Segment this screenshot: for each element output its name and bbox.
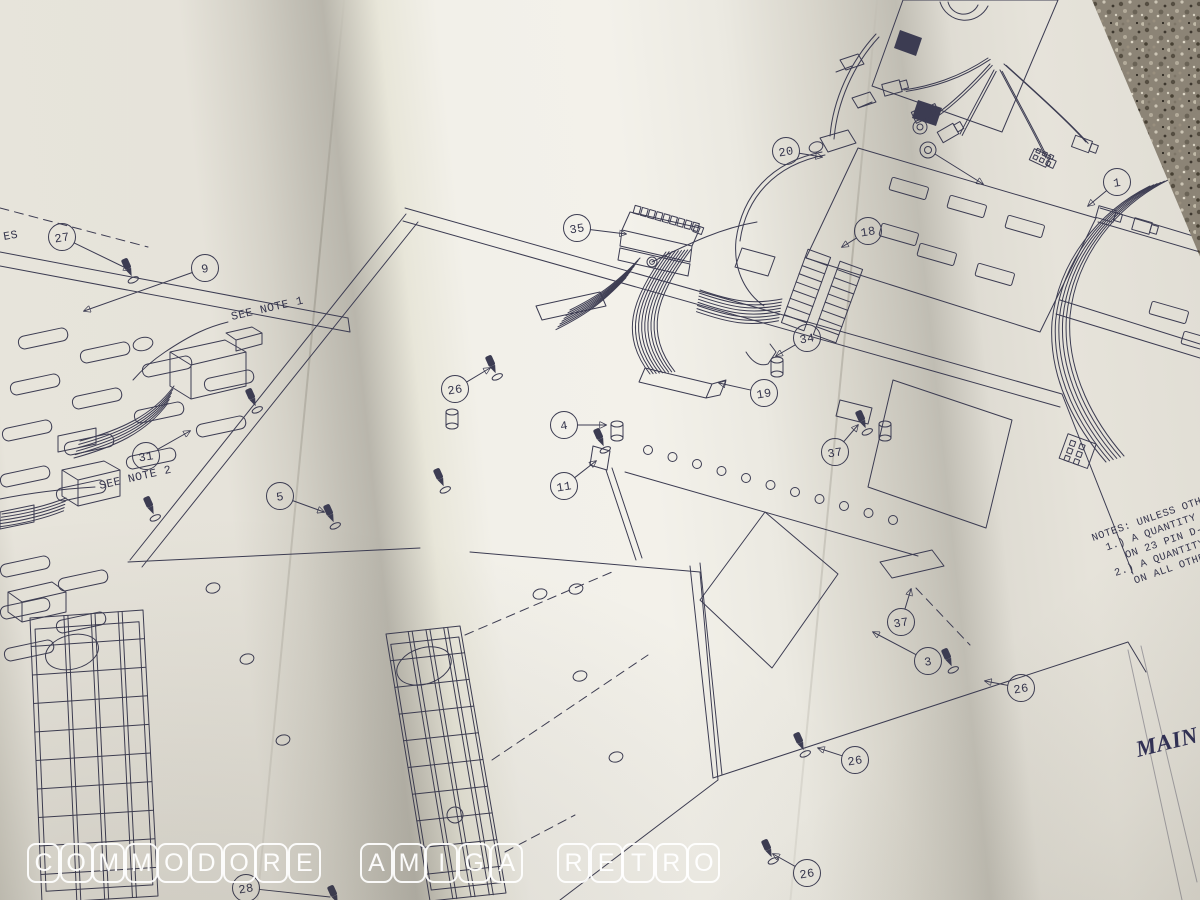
connector-pin bbox=[670, 216, 678, 225]
chassis-cutout bbox=[947, 195, 987, 218]
vent-holes-front bbox=[700, 512, 838, 668]
callout-3: 3 bbox=[873, 632, 942, 675]
callout-number: 9 bbox=[200, 262, 210, 277]
chassis-cutout bbox=[1149, 301, 1189, 324]
psu-wire bbox=[1004, 64, 1086, 142]
callout-1: 1 bbox=[1088, 169, 1131, 207]
connector-cutout bbox=[203, 369, 255, 392]
screw-drawing bbox=[431, 467, 451, 495]
callout-number: 28 bbox=[238, 881, 255, 897]
callout-31: 31 bbox=[133, 431, 191, 470]
callout-number: 31 bbox=[138, 449, 155, 465]
shield-and-ribbons-drawing bbox=[536, 212, 776, 560]
screw-hole bbox=[572, 669, 588, 682]
photo-scene: SEE NOTE 1 SEE NOTE 2 ES MAIN NOTES: UNL… bbox=[0, 0, 1200, 900]
psu-wire bbox=[960, 70, 994, 134]
callout-leader bbox=[575, 461, 596, 478]
callout-leader bbox=[799, 153, 822, 157]
ribbon-cable-line bbox=[570, 258, 640, 310]
connector-cutout bbox=[0, 465, 51, 488]
callout-number: 26 bbox=[847, 753, 864, 769]
screw-drawing bbox=[759, 838, 779, 866]
screw-drawing bbox=[483, 354, 503, 382]
label-leaders bbox=[0, 322, 228, 499]
psu-wire bbox=[934, 64, 990, 116]
callout-11: 11 bbox=[551, 461, 597, 500]
callout-leader bbox=[158, 431, 190, 449]
chassis-hole bbox=[766, 481, 775, 490]
callout-number: 34 bbox=[799, 331, 816, 347]
chassis-hole bbox=[864, 509, 873, 518]
connector-cutout bbox=[9, 373, 61, 396]
standoff-spacer bbox=[446, 409, 458, 429]
callout-number: 11 bbox=[556, 479, 573, 495]
right-panel-drawing bbox=[1056, 208, 1200, 468]
callout-balloons: 27931526411351834192013737326262628 bbox=[49, 138, 1131, 900]
vent-holes-right bbox=[868, 380, 1012, 528]
psu-wire bbox=[962, 71, 996, 135]
chassis-cutout bbox=[889, 177, 929, 200]
wire-connector bbox=[937, 120, 965, 143]
wire-connector bbox=[882, 78, 909, 96]
screw-hole bbox=[205, 581, 221, 594]
chassis-cutout bbox=[975, 263, 1015, 286]
callout-number: 26 bbox=[799, 866, 816, 882]
main-assembly-title: MAIN bbox=[1132, 722, 1200, 762]
screw-drawing bbox=[119, 257, 139, 285]
chassis-hole bbox=[742, 474, 751, 483]
screw-hole bbox=[568, 582, 584, 595]
callout-26: 26 bbox=[442, 368, 491, 403]
callout-number: 18 bbox=[860, 224, 877, 240]
connector-pin bbox=[677, 218, 685, 227]
callout-number: 19 bbox=[756, 386, 773, 402]
callout-number: 37 bbox=[893, 615, 910, 631]
callout-26: 26 bbox=[773, 854, 821, 887]
callout-leader bbox=[773, 854, 795, 866]
chassis-hole bbox=[889, 516, 898, 525]
standoff-spacer bbox=[771, 357, 783, 377]
chassis-hole bbox=[815, 495, 824, 504]
connector-pin bbox=[662, 214, 670, 223]
connector-cutout bbox=[0, 555, 51, 578]
cable-connector-drawing bbox=[736, 34, 879, 306]
panel-cutouts bbox=[0, 177, 1200, 662]
foldout-sheet: SEE NOTE 1 SEE NOTE 2 ES MAIN NOTES: UNL… bbox=[0, 0, 1200, 900]
callout-35: 35 bbox=[564, 215, 627, 242]
connector-pin bbox=[684, 220, 692, 229]
screw-drawing bbox=[141, 495, 161, 523]
callout-5: 5 bbox=[267, 483, 325, 513]
notes-block: NOTES: UNLESS OTHERW 1.) A QUANTITY OF 2… bbox=[1090, 488, 1200, 596]
psu-wire bbox=[904, 58, 988, 90]
chassis-hole bbox=[644, 446, 653, 455]
chassis-hole bbox=[791, 488, 800, 497]
callout-leader bbox=[818, 748, 842, 756]
ribbon-cable-line bbox=[657, 250, 691, 372]
callout-37: 37 bbox=[888, 589, 915, 636]
callout-number: 4 bbox=[559, 419, 569, 434]
callout-number: 3 bbox=[923, 655, 933, 670]
paper-edge-lines bbox=[1128, 646, 1197, 900]
callout-number: 5 bbox=[275, 490, 285, 505]
exploded-assembly-diagram: SEE NOTE 1 SEE NOTE 2 ES MAIN NOTES: UNL… bbox=[0, 0, 1200, 900]
callout-leader bbox=[844, 425, 858, 442]
callout-leader bbox=[776, 345, 795, 356]
callout-19: 19 bbox=[719, 380, 778, 407]
front-bezel-grilles bbox=[30, 610, 506, 900]
screw-hole bbox=[532, 587, 548, 600]
bracket-drawing bbox=[836, 400, 872, 424]
callout-number: 35 bbox=[569, 221, 586, 237]
callout-leader bbox=[590, 230, 626, 234]
wire-connector bbox=[1071, 135, 1099, 155]
callout-26: 26 bbox=[818, 747, 869, 774]
callout-number: 20 bbox=[778, 144, 795, 160]
callout-20: 20 bbox=[773, 138, 823, 165]
callout-number: 26 bbox=[1013, 681, 1030, 697]
callout-leader bbox=[74, 243, 130, 270]
pin-connector bbox=[781, 249, 830, 331]
connector-cutout bbox=[79, 341, 131, 364]
callout-leader bbox=[467, 368, 490, 382]
connector-cutout bbox=[17, 327, 69, 350]
chassis-cutout bbox=[879, 223, 919, 246]
screw-drawing bbox=[243, 387, 263, 415]
callout-34: 34 bbox=[776, 325, 821, 357]
callout-number: 37 bbox=[827, 445, 844, 461]
connector-cutout bbox=[1, 419, 53, 442]
connector-cutout bbox=[57, 569, 109, 592]
callout-leader bbox=[293, 501, 324, 512]
callout-leader bbox=[259, 889, 330, 897]
bracket-drawing bbox=[880, 550, 944, 578]
callout-26: 26 bbox=[985, 675, 1035, 702]
chassis-cutout bbox=[1181, 331, 1200, 354]
chassis-cutout bbox=[1005, 215, 1045, 238]
chassis-hole bbox=[840, 502, 849, 511]
callout-number: 26 bbox=[447, 382, 464, 398]
callout-number: 1 bbox=[1112, 176, 1122, 191]
connector-cutout bbox=[71, 387, 123, 410]
chassis-hole bbox=[668, 453, 677, 462]
chassis-cutout bbox=[917, 243, 957, 266]
power-supply-drawing bbox=[806, 0, 1096, 332]
screw-hole bbox=[239, 652, 255, 665]
callout-37: 37 bbox=[822, 425, 859, 466]
callout-leader bbox=[905, 589, 911, 609]
callout-18: 18 bbox=[842, 218, 882, 248]
screw-drawing bbox=[321, 503, 341, 531]
chassis-hole bbox=[693, 460, 702, 469]
screw-drawing bbox=[791, 731, 811, 759]
connector-cutout bbox=[141, 355, 193, 378]
bezel-grille bbox=[386, 626, 506, 900]
standoff-spacer bbox=[611, 421, 623, 441]
callout-leader bbox=[1088, 191, 1107, 206]
screw-drawing bbox=[325, 884, 345, 900]
callout-number: 27 bbox=[54, 230, 71, 246]
ribbon-cable-line bbox=[566, 264, 636, 316]
chassis-hole bbox=[717, 467, 726, 476]
connector-cutout bbox=[195, 415, 247, 438]
callout-28: 28 bbox=[233, 875, 331, 900]
cutoff-text-fragment: ES bbox=[2, 229, 19, 244]
bezel-grille bbox=[30, 610, 158, 900]
callout-leader bbox=[842, 238, 857, 247]
ribbon-cable-line bbox=[568, 261, 638, 313]
screw-hole bbox=[275, 733, 291, 746]
callout-leader bbox=[873, 632, 916, 655]
screw-hole bbox=[608, 750, 624, 763]
see-note-1-label: SEE NOTE 1 bbox=[230, 295, 305, 324]
callout-9: 9 bbox=[84, 255, 219, 312]
